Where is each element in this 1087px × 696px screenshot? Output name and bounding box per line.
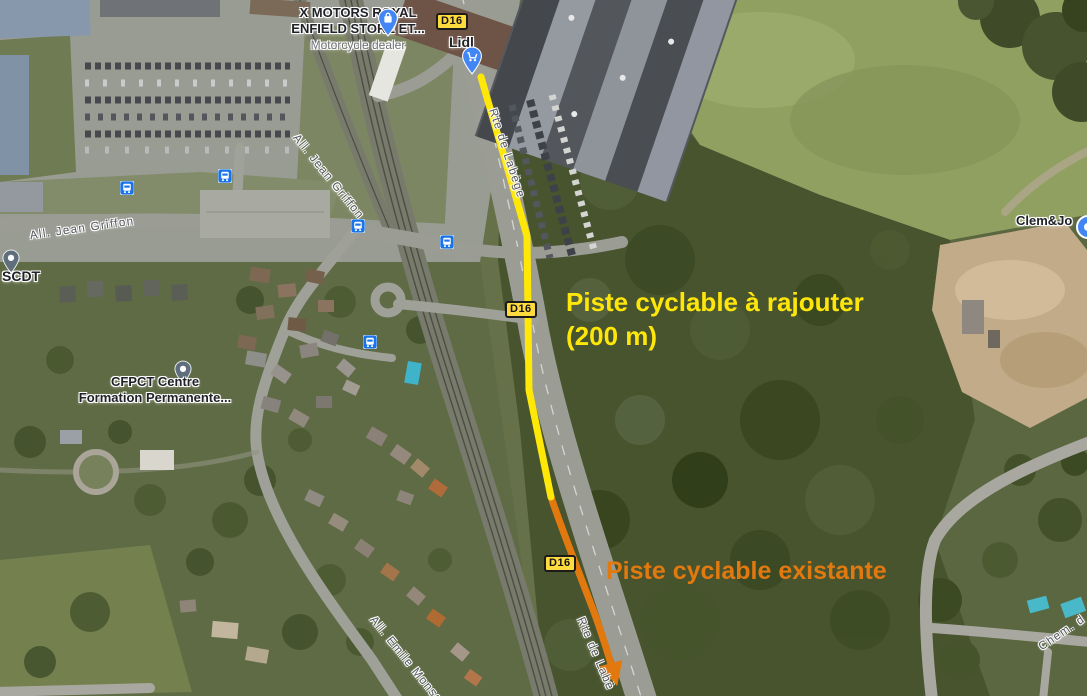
poi-x-motors-name-line2[interactable]: ENFIELD STORE ET... (268, 21, 448, 37)
bus-stop-icon[interactable] (218, 169, 232, 183)
route-badge-d16: D16 (544, 555, 576, 572)
route-badge-d16: D16 (505, 301, 537, 318)
satellite-imagery[interactable] (0, 0, 1087, 696)
poi-cfpct[interactable]: CFPCT Centre Formation Permanente... (60, 374, 250, 406)
poi-x-motors-category: Motorcycle dealer (268, 38, 448, 52)
annotation-new-cycle-path-line2: (200 m) (566, 320, 864, 354)
satellite-map[interactable]: X MOTORS ROYAL ENFIELD STORE ET... Motor… (0, 0, 1087, 696)
annotation-existing-cycle-path: Piste cyclable existante (606, 555, 887, 588)
shopping-cart-pin-icon[interactable] (459, 46, 485, 76)
poi-scdt-name[interactable]: SCDT (2, 268, 40, 285)
bus-stop-icon[interactable] (351, 219, 365, 233)
annotation-new-cycle-path-line1: Piste cyclable à rajouter (566, 286, 864, 320)
poi-clem-jo-name[interactable]: Clem&Jo (1016, 213, 1072, 229)
bus-stop-icon[interactable] (363, 335, 377, 349)
poi-cfpct-name-line2[interactable]: Formation Permanente... (60, 390, 250, 406)
bus-stop-icon[interactable] (440, 235, 454, 249)
poi-cfpct-name-line1[interactable]: CFPCT Centre (60, 374, 250, 390)
poi-x-motors[interactable]: X MOTORS ROYAL ENFIELD STORE ET... Motor… (268, 5, 448, 52)
annotation-new-cycle-path: Piste cyclable à rajouter (200 m) (566, 286, 864, 354)
bus-stop-icon[interactable] (120, 181, 134, 195)
route-badge-d16: D16 (436, 13, 468, 30)
shopping-bag-pin-icon[interactable] (375, 8, 401, 38)
poi-x-motors-name-line1[interactable]: X MOTORS ROYAL (268, 5, 448, 21)
